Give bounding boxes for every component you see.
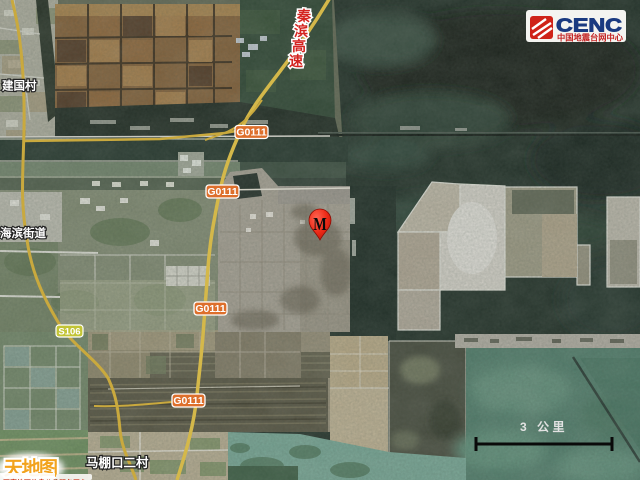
- svg-text:秦: 秦: [296, 8, 312, 24]
- svg-text:中国地震台网中心: 中国地震台网中心: [557, 33, 624, 43]
- svg-text:海滨街道: 海滨街道: [0, 226, 46, 240]
- svg-text:G0111: G0111: [173, 395, 204, 407]
- svg-text:M: M: [313, 214, 327, 234]
- svg-text:滨: 滨: [294, 23, 308, 39]
- svg-text:S106: S106: [58, 327, 80, 338]
- svg-text:G0111: G0111: [195, 303, 226, 315]
- svg-text:G0111: G0111: [207, 186, 238, 198]
- svg-text:速: 速: [289, 53, 303, 69]
- svg-text:建国村: 建国村: [2, 79, 37, 93]
- svg-text:马棚口二村: 马棚口二村: [86, 455, 149, 470]
- svg-text:G0111: G0111: [236, 127, 267, 139]
- svg-text:高: 高: [292, 38, 306, 54]
- svg-text:3 公里: 3 公里: [520, 419, 568, 434]
